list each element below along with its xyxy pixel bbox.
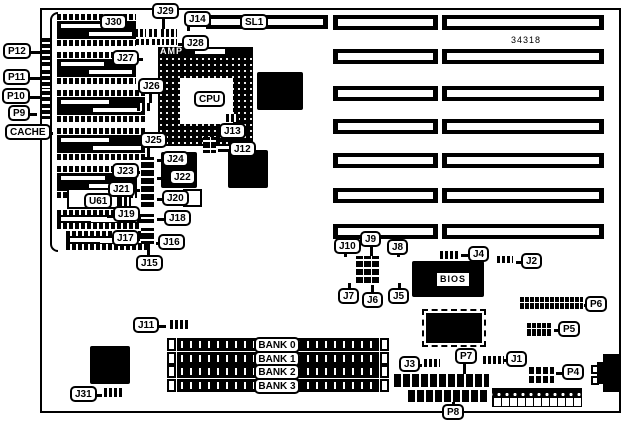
simm-clip-right-1 — [380, 352, 389, 365]
cache-chip-3 — [57, 90, 145, 122]
callout-j21: J21 — [108, 181, 135, 197]
isa-slot-1-seg-b — [442, 15, 604, 30]
isa-slot-3-seg-a — [333, 86, 438, 101]
callout-j23: J23 — [112, 163, 139, 179]
power-connector-pins — [492, 388, 582, 397]
simm-clip-right-3 — [380, 379, 389, 392]
chip-right-of-cpu — [257, 72, 303, 110]
part-number: 34318 — [511, 35, 541, 45]
callout-p11: P11 — [3, 69, 30, 85]
callout-p7: P7 — [455, 348, 477, 364]
j3-jumper — [424, 359, 440, 367]
isa-slot-3-seg-b — [442, 86, 604, 101]
callout-j9: J9 — [360, 231, 381, 247]
callout-p4: P4 — [562, 364, 584, 380]
callout-j1: J1 — [506, 351, 527, 367]
callout-cpu: CPU — [194, 91, 225, 107]
simm-clip-left-0 — [167, 338, 176, 351]
isa-slot-2-seg-a — [333, 49, 438, 64]
cache-chip-4 — [57, 128, 145, 160]
callout-cache: CACHE — [5, 124, 51, 140]
j12-jumper — [203, 137, 216, 153]
j28-pins-a — [152, 39, 164, 45]
callout-j30: J30 — [100, 14, 127, 30]
callout-j24: J24 — [162, 151, 189, 167]
chip-bottom-left — [90, 346, 130, 384]
p12-edge-connector — [42, 38, 50, 67]
isa-slot-6-seg-a — [333, 188, 438, 203]
keyboard-connector — [603, 354, 619, 392]
j27-pins — [136, 39, 149, 45]
jumper-strip-main — [141, 157, 154, 207]
p10-edge-connector — [42, 91, 50, 102]
callout-j12: J12 — [229, 141, 256, 157]
j13-pins — [226, 114, 239, 122]
j29-pins-c — [171, 29, 177, 37]
callout-j31: J31 — [70, 386, 97, 402]
j31-jumper — [104, 388, 122, 397]
callout-p10: P10 — [2, 88, 30, 104]
j18-jumper — [141, 214, 154, 223]
callout-j20: J20 — [162, 190, 189, 206]
j28-pins-b — [166, 39, 177, 45]
j2-jumper — [497, 256, 513, 263]
p7-connector — [394, 374, 489, 387]
callout-j16: J16 — [158, 234, 185, 250]
callout-bios: BIOS — [436, 272, 470, 287]
callout-j19: J19 — [113, 206, 140, 222]
j1-jumper — [483, 356, 504, 364]
p11-edge-connector — [42, 70, 50, 89]
j30-pins — [135, 29, 146, 37]
callout-j8: J8 — [387, 239, 408, 255]
callout-j11: J11 — [133, 317, 159, 333]
callout-j4: J4 — [468, 246, 489, 262]
simm-clip-left-2 — [167, 365, 176, 378]
j11-jumper — [170, 320, 190, 329]
simm-clip-right-0 — [380, 338, 389, 351]
callout-j15: J15 — [136, 255, 163, 271]
callout-p8: P8 — [442, 404, 464, 420]
j29-pins-a — [149, 29, 158, 37]
isa-slot-1-seg-a — [333, 15, 438, 30]
simm-clip-left-3 — [167, 379, 176, 392]
simm-clip-left-1 — [167, 352, 176, 365]
motherboard-diagram: 34318 AMPBANK 0BANK 1BANK 2BANK 3J30J29J… — [0, 0, 626, 428]
j4-jumper — [440, 251, 459, 259]
isa-slot-7-seg-a — [333, 224, 438, 239]
callout-p9: P9 — [8, 105, 30, 121]
callout-j25: J25 — [140, 132, 167, 148]
callout-p6: P6 — [585, 296, 607, 312]
p5-header — [527, 323, 552, 336]
power-connector-sockets — [492, 397, 582, 407]
callout-j18: J18 — [164, 210, 191, 226]
j5-j10-block — [356, 256, 380, 285]
callout-j22: J22 — [169, 169, 196, 185]
isa-slot-5-seg-a — [333, 153, 438, 168]
callout-j7: J7 — [338, 288, 359, 304]
callout-j29: J29 — [152, 3, 179, 19]
p9-edge-connector — [42, 104, 50, 119]
callout-sl1: SL1 — [240, 14, 268, 30]
p8-connector — [408, 390, 489, 402]
callout-j14: J14 — [184, 11, 211, 27]
j29-pins-b — [161, 29, 169, 37]
callout-j10: J10 — [334, 238, 361, 254]
callout-j6: J6 — [362, 292, 383, 308]
isa-slot-6-seg-b — [442, 188, 604, 203]
callout-j27: J27 — [112, 50, 139, 66]
callout-j5: J5 — [388, 288, 409, 304]
simm-clip-right-2 — [380, 365, 389, 378]
callout-j26: J26 — [138, 78, 165, 94]
callout-j2: J2 — [521, 253, 542, 269]
bank-label-3: BANK 3 — [254, 378, 300, 394]
p4-header — [529, 367, 554, 383]
callout-j17: J17 — [112, 230, 139, 246]
chipset-qfp — [426, 313, 482, 343]
callout-j13: J13 — [219, 123, 246, 139]
keyboard-connector-tab — [597, 362, 604, 384]
p6-header — [520, 297, 583, 309]
isa-slot-4-seg-b — [442, 119, 604, 134]
callout-p5: P5 — [558, 321, 580, 337]
isa-slot-7-seg-b — [442, 224, 604, 239]
callout-u61: U61 — [84, 193, 112, 209]
callout-j3: J3 — [399, 356, 420, 372]
j26-jumper — [137, 103, 152, 111]
callout-p12: P12 — [3, 43, 31, 59]
callout-j28: J28 — [182, 35, 209, 51]
isa-slot-4-seg-a — [333, 119, 438, 134]
isa-slot-5-seg-b — [442, 153, 604, 168]
j16-jumper — [141, 228, 154, 244]
isa-slot-2-seg-b — [442, 49, 604, 64]
